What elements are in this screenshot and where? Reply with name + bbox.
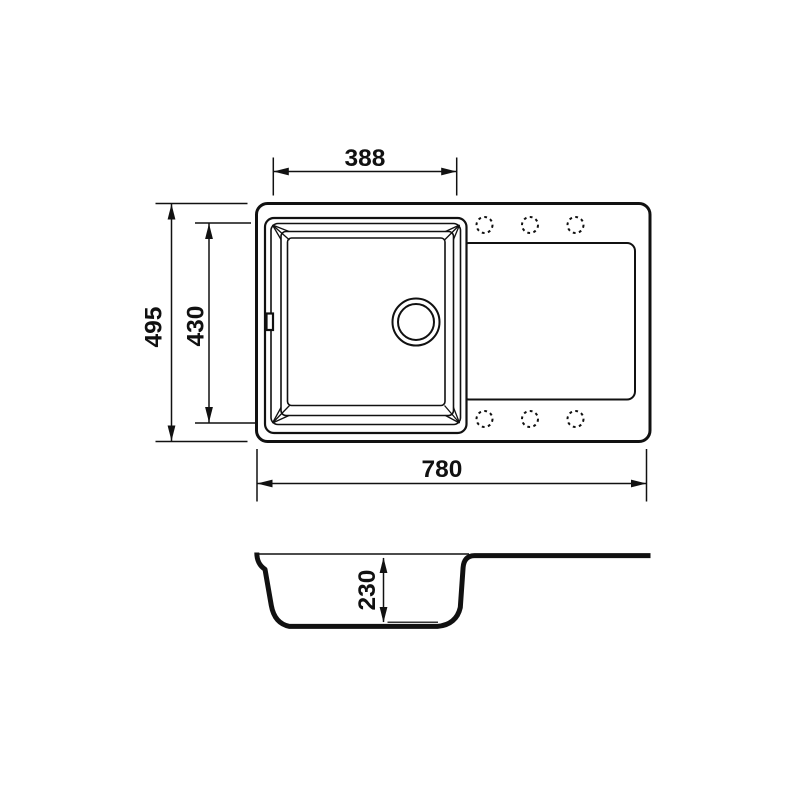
dim-bowl-height: 230	[354, 558, 387, 623]
arrowhead-bottom	[168, 426, 176, 442]
dim-label-bowl-front-back: 430	[183, 306, 210, 347]
section-profile	[257, 553, 651, 627]
overflow-slot	[267, 314, 274, 331]
section-view: 230	[256, 553, 651, 627]
arrowhead-bottom	[205, 407, 213, 423]
dim-label-bowl-height: 230	[354, 570, 381, 611]
sink-dimension-drawing: 388 495 430 780 230	[0, 0, 800, 800]
dim-label-overall-width: 780	[422, 456, 463, 483]
bowl	[265, 218, 467, 433]
dim-bowl-width: 388	[273, 145, 456, 196]
dim-label-bowl-width: 388	[345, 145, 386, 172]
dim-bowl-front-back: 430	[183, 223, 259, 423]
top-view	[257, 204, 651, 442]
dim-overall-width: 780	[257, 449, 647, 502]
arrowhead-top	[205, 224, 213, 240]
dim-label-overall-depth: 495	[141, 307, 168, 348]
arrowhead-left	[257, 480, 273, 488]
arrowhead-top	[168, 204, 176, 220]
drain-outer-circle	[393, 299, 440, 346]
arrowhead-right	[441, 168, 457, 176]
arrowhead-left	[273, 168, 289, 176]
arrowhead-right	[631, 480, 647, 488]
